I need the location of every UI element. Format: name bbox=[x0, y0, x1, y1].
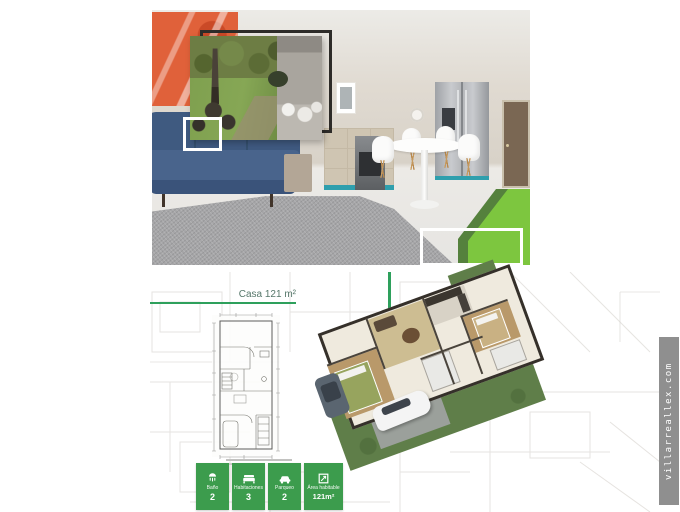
living-room-photo bbox=[152, 10, 530, 265]
wall-panel bbox=[336, 82, 356, 114]
watermark-strip: villarreallex.com bbox=[659, 337, 679, 505]
plan-title: Casa 121 m² bbox=[150, 289, 296, 300]
floorplan-3d bbox=[322, 283, 562, 463]
badge-bathrooms: Baño 2 bbox=[196, 463, 229, 510]
badge-bedrooms: Habitaciones 3 bbox=[232, 463, 265, 510]
terrace-chairs bbox=[277, 88, 322, 136]
title-underline bbox=[150, 302, 296, 304]
dining-table-base bbox=[410, 200, 439, 209]
stats-badges: Baño 2 Habitaciones 3 Parqueo 2 bbox=[196, 463, 343, 510]
bed-icon bbox=[242, 472, 256, 485]
badge-label: Parqueo bbox=[275, 486, 294, 491]
dining-table-stem bbox=[421, 150, 428, 202]
badge-value: 2 bbox=[282, 492, 287, 502]
badge-label: Habitaciones bbox=[234, 486, 263, 491]
badge-area: Área habitable 121m² bbox=[304, 463, 343, 510]
car-icon bbox=[278, 472, 292, 485]
real-estate-flyer: Casa 121 m² bbox=[0, 0, 680, 512]
floorplan-2d bbox=[204, 311, 288, 461]
badge-parking: Parqueo 2 bbox=[268, 463, 301, 510]
dining-chair bbox=[372, 136, 394, 163]
white-accent-square bbox=[183, 117, 222, 151]
badge-value: 121m² bbox=[313, 492, 335, 502]
badge-value: 2 bbox=[210, 492, 215, 502]
area-icon bbox=[317, 472, 330, 485]
shower-icon bbox=[206, 472, 219, 485]
watermark-text: villarreallex.com bbox=[659, 337, 679, 505]
badge-value: 3 bbox=[246, 492, 251, 502]
white-accent-rectangle bbox=[420, 228, 523, 265]
badge-label: Baño bbox=[207, 486, 219, 491]
teal-kickboard-2 bbox=[435, 176, 489, 180]
side-table bbox=[284, 154, 312, 192]
dining-chair bbox=[458, 134, 480, 161]
badge-label: Área habitable bbox=[307, 486, 339, 491]
entry-door bbox=[502, 100, 530, 188]
wall-clock bbox=[410, 108, 424, 122]
plan-caption-line bbox=[226, 459, 292, 461]
